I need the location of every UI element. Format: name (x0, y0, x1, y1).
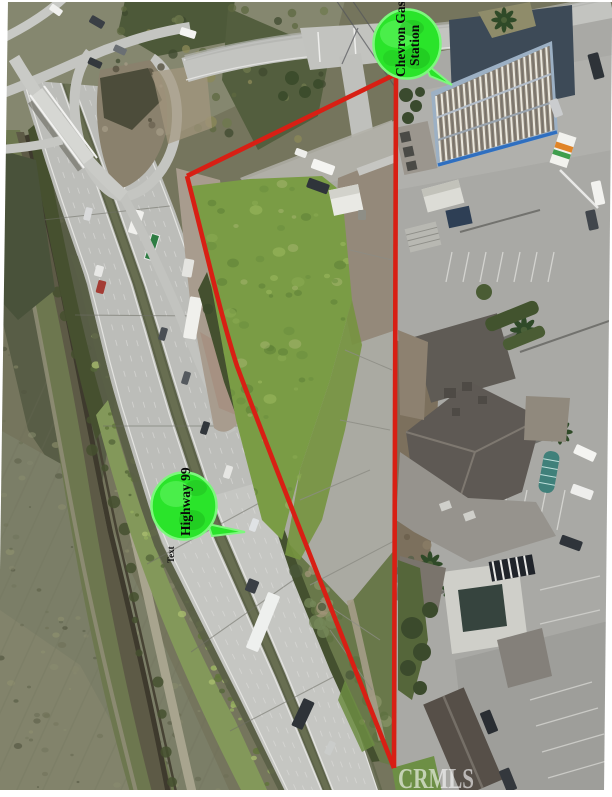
svg-text:CRMLS: CRMLS (398, 764, 474, 792)
svg-text:Station: Station (407, 24, 422, 66)
svg-text:Highway 99: Highway 99 (178, 467, 193, 536)
svg-text:Chevron Gas: Chevron Gas (393, 1, 408, 77)
svg-text:Text: Text (166, 546, 176, 563)
